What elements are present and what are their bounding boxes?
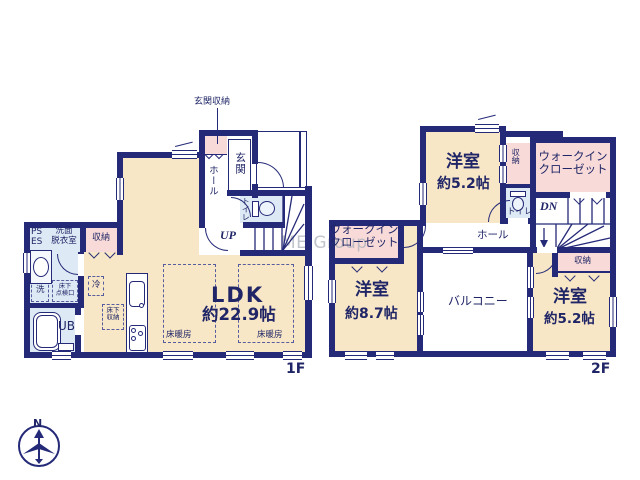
underfloor-storage-label: 床下 収納 bbox=[102, 307, 124, 322]
door-opening bbox=[75, 315, 81, 335]
stove-burner bbox=[131, 328, 136, 333]
ps-label: PS bbox=[31, 227, 42, 237]
stove-burner bbox=[138, 331, 143, 336]
wall bbox=[530, 137, 616, 143]
balcony-label: バルコニー bbox=[448, 295, 508, 309]
walkin-closet-right-label: ウォークイン クローゼット bbox=[536, 150, 610, 176]
wall bbox=[252, 130, 258, 164]
bedroom-left-size: 約8.7帖 bbox=[345, 306, 398, 322]
floor1-label: 1F bbox=[286, 361, 305, 377]
porch-post-line bbox=[299, 132, 301, 187]
washer-label: 洗 bbox=[36, 286, 45, 296]
vent-arrow bbox=[175, 142, 193, 148]
washroom-label: 洗面 脱衣室 bbox=[46, 227, 82, 247]
hall-label: ホール bbox=[206, 165, 217, 197]
bath-step bbox=[58, 343, 74, 351]
floor2-label: 2F bbox=[591, 361, 610, 377]
stairs-up-label: UP bbox=[220, 229, 236, 243]
bedroom-left bbox=[335, 258, 417, 351]
floor-heating-label: 床暖房 bbox=[166, 331, 192, 341]
compass-north-label: N bbox=[33, 418, 42, 431]
stairs-up-lines bbox=[246, 194, 306, 256]
window bbox=[172, 150, 197, 159]
bathtub-inner bbox=[36, 315, 58, 348]
ldk-room bbox=[123, 158, 199, 228]
wall bbox=[329, 351, 616, 357]
window bbox=[419, 183, 427, 205]
entrance-storage-label: 玄関収納 bbox=[194, 97, 230, 107]
window bbox=[116, 178, 124, 200]
unit-bath-label: UB bbox=[58, 320, 75, 334]
ldk-size-label: 約22.9帖 bbox=[202, 306, 276, 325]
closet-top-label: 収納 bbox=[511, 148, 520, 164]
window bbox=[417, 292, 424, 312]
window bbox=[417, 315, 424, 335]
door-opening bbox=[508, 218, 528, 224]
bedroom-left-label: 洋室 bbox=[355, 281, 389, 301]
window bbox=[226, 351, 254, 360]
toilet-label: トイレ bbox=[241, 197, 250, 221]
closet-slider bbox=[499, 166, 507, 183]
underfloor-hatch-line2: 点検口 bbox=[52, 290, 78, 297]
stove-burner bbox=[131, 336, 136, 341]
window bbox=[328, 280, 336, 303]
window bbox=[23, 253, 31, 273]
kitchen-faucet bbox=[139, 303, 144, 308]
kitchen-corridor bbox=[84, 252, 124, 352]
washbasin-bowl bbox=[33, 257, 49, 277]
bedroom-right-label: 洋室 bbox=[553, 288, 587, 308]
bedroom-top-size: 約5.2帖 bbox=[437, 176, 490, 192]
wall bbox=[420, 126, 426, 226]
washroom-label-line2: 脱衣室 bbox=[46, 237, 82, 247]
wall bbox=[24, 303, 80, 308]
bedroom-right-size: 約5.2帖 bbox=[544, 312, 595, 328]
wall bbox=[417, 247, 533, 253]
door-opening bbox=[78, 254, 84, 276]
closet-label: 収納 bbox=[92, 233, 110, 243]
wic-left-line2: クローゼット bbox=[329, 236, 399, 249]
window bbox=[546, 351, 569, 360]
window bbox=[163, 351, 193, 360]
stairs-down-label: DN bbox=[540, 200, 557, 214]
window bbox=[527, 297, 534, 318]
underfloor-storage-line2: 収納 bbox=[102, 314, 124, 321]
window bbox=[283, 351, 302, 360]
window bbox=[304, 266, 313, 300]
ldk-label: LDK bbox=[211, 283, 264, 307]
window bbox=[345, 351, 367, 360]
fridge-label: 冷 bbox=[92, 281, 101, 291]
es-label: ES bbox=[31, 237, 42, 247]
wall bbox=[24, 222, 30, 358]
wall bbox=[329, 258, 404, 264]
compass-needle bbox=[21, 428, 57, 466]
vent-arrow bbox=[478, 115, 496, 121]
closet-front-line bbox=[558, 271, 610, 273]
closet-slider bbox=[499, 145, 507, 162]
wall bbox=[199, 130, 258, 136]
door-opening bbox=[537, 247, 557, 253]
window bbox=[475, 124, 499, 133]
floorplan-canvas: ME Group bbox=[0, 0, 640, 480]
balcony-door bbox=[443, 247, 473, 254]
window bbox=[609, 297, 617, 327]
label-leader-line bbox=[217, 108, 218, 144]
window bbox=[583, 351, 606, 360]
wall bbox=[199, 130, 205, 228]
ldk-room bbox=[123, 228, 199, 255]
wall bbox=[117, 228, 123, 255]
toilet-label: トイレ bbox=[507, 208, 533, 218]
underfloor-hatch-label: 床下 点検口 bbox=[52, 283, 78, 297]
hall-label: ホール bbox=[477, 229, 509, 241]
entrance-label: 玄関 bbox=[234, 152, 246, 175]
closet-bottom-label: 収納 bbox=[574, 257, 591, 267]
window bbox=[527, 267, 534, 288]
window bbox=[52, 351, 71, 360]
closet-toilet-divider bbox=[506, 184, 530, 188]
window bbox=[376, 351, 394, 360]
bedroom-top-label: 洋室 bbox=[446, 153, 480, 173]
walkin-closet-left-label: ウォークイン クローゼット bbox=[329, 223, 399, 249]
floor-heating-label: 床暖房 bbox=[257, 331, 283, 341]
wic-right-line2: クローゼット bbox=[536, 163, 610, 176]
